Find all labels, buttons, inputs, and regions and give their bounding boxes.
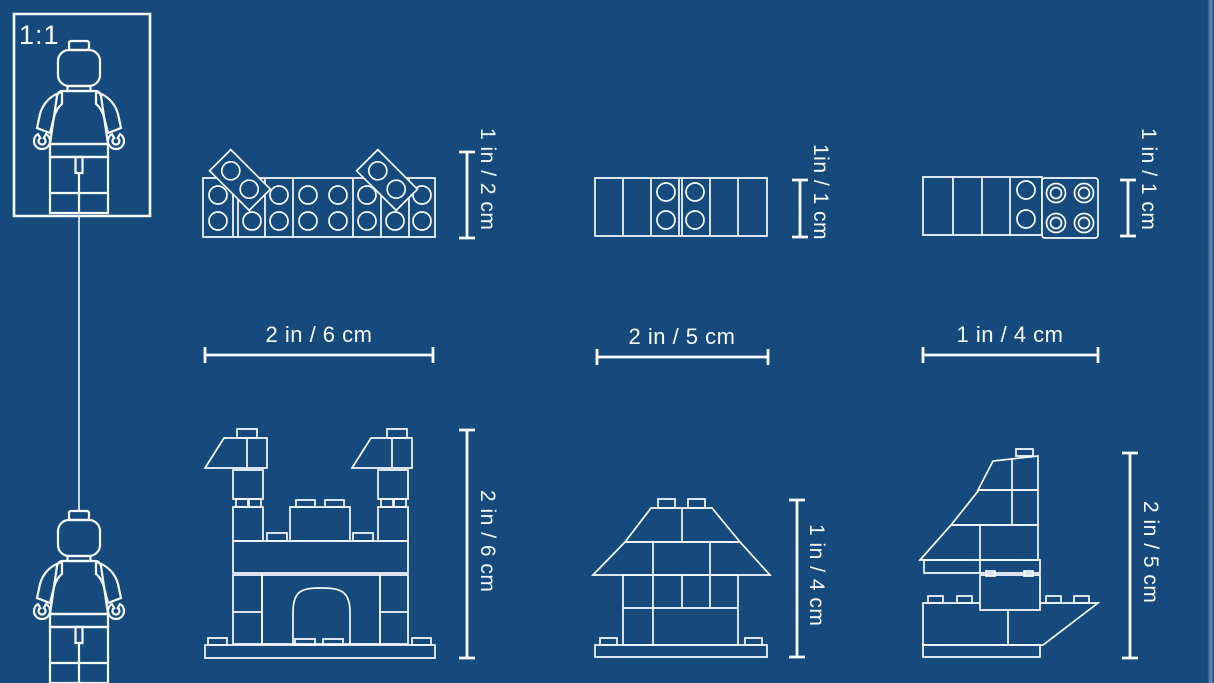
- castle-right-wall: [380, 575, 408, 644]
- strip-stud: [1017, 181, 1035, 199]
- house-lower-roof: [593, 542, 770, 575]
- wall-width-dimension-line: [205, 347, 433, 363]
- house-walls: [623, 575, 738, 645]
- minifigure-bottom: [34, 511, 124, 683]
- plate-width-dimension-line: [923, 347, 1098, 363]
- castle-long-brick: [233, 541, 408, 573]
- row-studs: [657, 183, 704, 229]
- wall-width-dimension-label: 2 in / 6 cm: [209, 324, 429, 346]
- boat-mast-brick: [980, 575, 1040, 610]
- castle-right-tower: [352, 429, 412, 541]
- brick-and-plate-top-view-drawing: [923, 177, 1098, 238]
- castle-left-wall: [233, 575, 262, 644]
- row-height-dimension-label: 1in / 1 cm: [810, 144, 831, 240]
- castle-ledge-stud: [353, 533, 373, 541]
- castle-center-brick-stud: [325, 500, 344, 507]
- row-width-dimension-label: 2 in / 5 cm: [572, 326, 792, 348]
- blueprint-page: 1:1 1 in / 2 cm 2 in / 6 cm 1in / 1 cm 2…: [0, 0, 1214, 683]
- castle-height-dimension-line: [459, 430, 475, 658]
- boat-bottom-plate: [923, 645, 1040, 657]
- house-baseplate-stud: [745, 638, 762, 645]
- castle-ledge-stud: [267, 533, 287, 541]
- house-wall-brick-lines: [623, 575, 738, 645]
- castle-left-tower: [205, 429, 267, 541]
- plate-strip-dividers: [953, 177, 1010, 235]
- scale-reference-group: [14, 14, 150, 683]
- house-roof-stud: [688, 499, 705, 508]
- boat-height-dimension-line: [1122, 453, 1138, 658]
- minifigure-top: [34, 41, 124, 213]
- castle-center-brick: [290, 507, 350, 541]
- strip-stud: [1017, 210, 1035, 228]
- house-height-dimension-line: [789, 500, 805, 657]
- row-strip: [595, 178, 767, 236]
- brick-row-top-view-drawing: [595, 178, 767, 236]
- castle-arch-opening: [293, 588, 350, 644]
- page-edge-highlight: [1207, 0, 1214, 683]
- row-brick-dividers: [623, 178, 738, 236]
- plate-height-dimension-label: 1 in / 1 cm: [1138, 128, 1159, 230]
- house-baseplate: [595, 645, 767, 657]
- house-roof-stud: [658, 499, 675, 508]
- row-height-dimension-line: [792, 180, 808, 237]
- castle-arch-brick: [262, 575, 380, 644]
- castle-drawing: [205, 429, 435, 658]
- house-height-dimension-label: 1 in / 4 cm: [806, 524, 827, 626]
- wall-height-dimension-label: 1 in / 2 cm: [477, 128, 498, 230]
- tilted-brick-left: [210, 150, 271, 211]
- plate-width-dimension-label: 1 in / 4 cm: [900, 324, 1120, 346]
- boat-height-dimension-label: 2 in / 5 cm: [1140, 501, 1161, 603]
- wall-height-dimension-line: [459, 152, 475, 238]
- house-baseplate-stud: [600, 638, 617, 645]
- castle-baseplate: [205, 645, 435, 658]
- boat-sail-slopes: [920, 449, 1040, 573]
- house-drawing: [593, 499, 770, 657]
- overlapping-plate: [1042, 178, 1098, 238]
- plate-height-dimension-line: [1120, 180, 1136, 236]
- sailboat-drawing: [920, 449, 1098, 657]
- house-roof-band-dividers: [653, 542, 710, 575]
- castle-height-dimension-label: 2 in / 6 cm: [477, 490, 498, 592]
- scale-label: 1:1: [19, 22, 60, 49]
- row-width-dimension-line: [597, 349, 768, 365]
- castle-center-brick-stud: [296, 500, 315, 507]
- brick-wall-top-view-drawing: [203, 150, 435, 237]
